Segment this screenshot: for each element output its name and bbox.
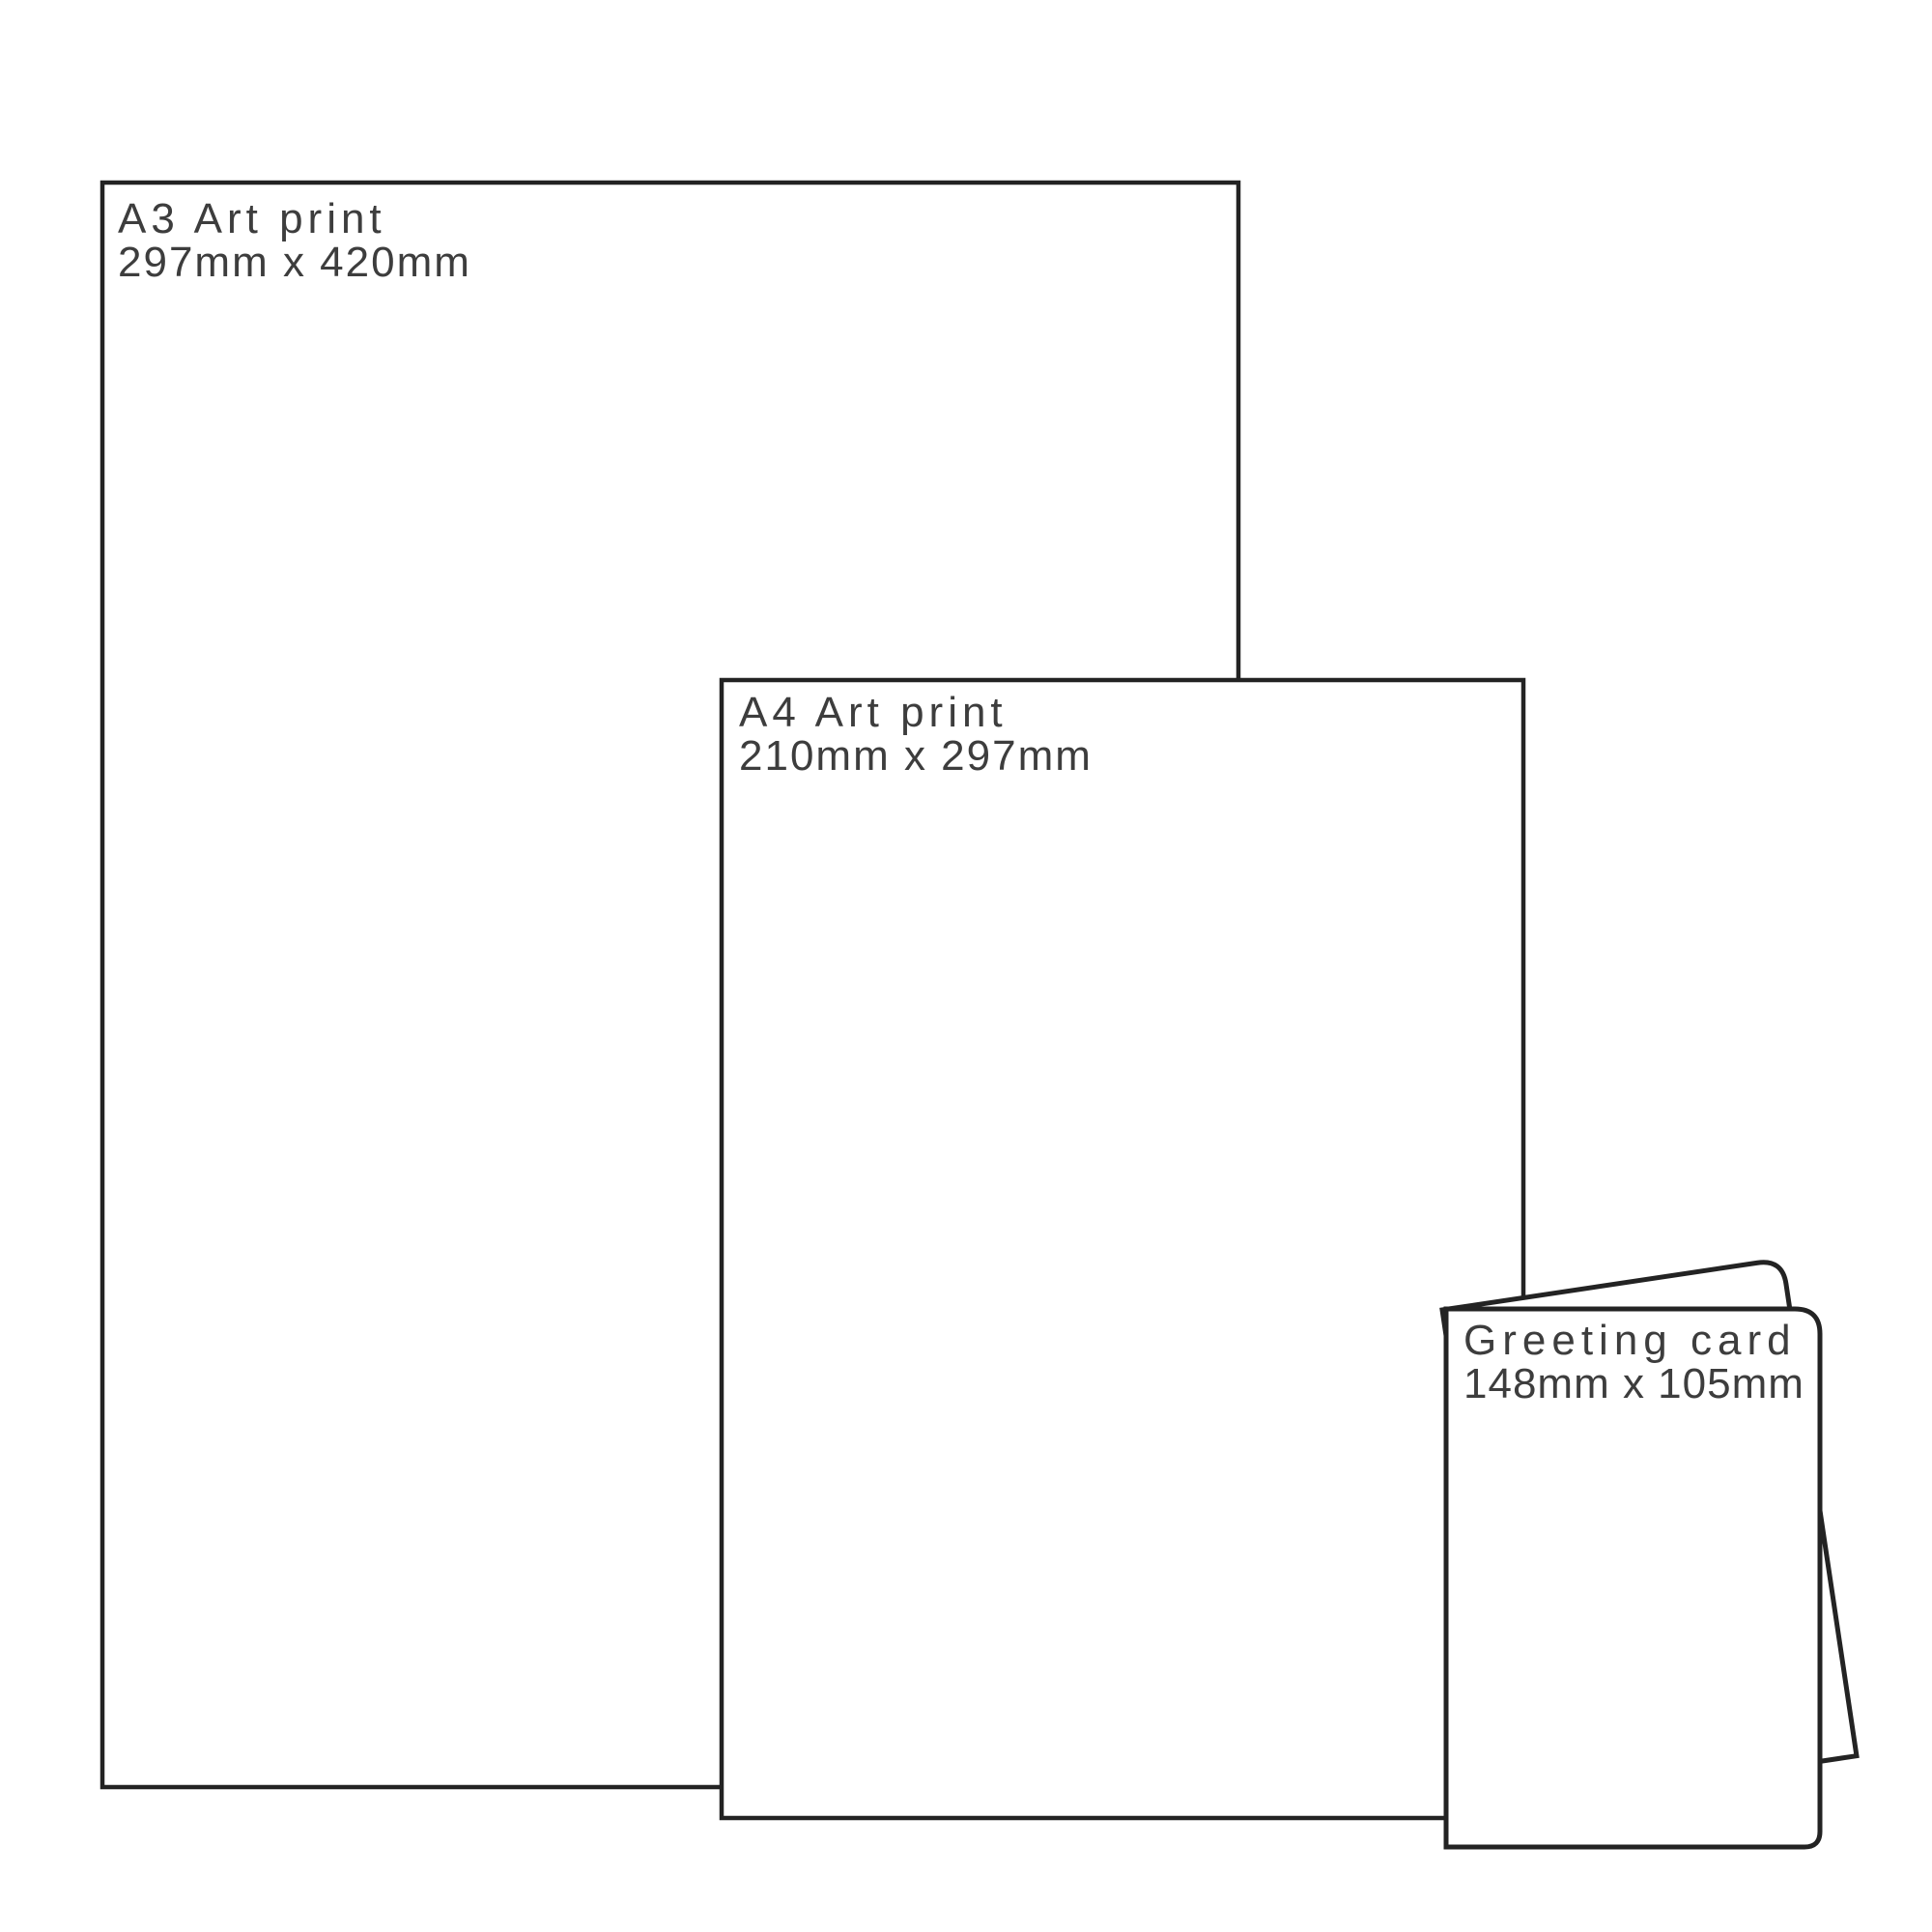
a3-dimensions: 297mm x 420mm xyxy=(118,241,471,284)
a4-label: A4 Art print 210mm x 297mm xyxy=(739,691,1093,778)
a4-sheet-outline xyxy=(722,680,1523,1818)
paper-shapes xyxy=(0,0,1932,1932)
a4-title: A4 Art print xyxy=(739,691,1093,734)
greeting-card-label: Greeting card 148mm x 105mm xyxy=(1463,1319,1804,1406)
greeting-card-dimensions: 148mm x 105mm xyxy=(1463,1362,1804,1406)
print-size-comparison-diagram: A3 Art print 297mm x 420mm A4 Art print … xyxy=(0,0,1932,1932)
a3-label: A3 Art print 297mm x 420mm xyxy=(118,197,471,284)
greeting-card-title: Greeting card xyxy=(1463,1319,1804,1362)
a3-title: A3 Art print xyxy=(118,197,471,241)
a4-dimensions: 210mm x 297mm xyxy=(739,734,1093,778)
